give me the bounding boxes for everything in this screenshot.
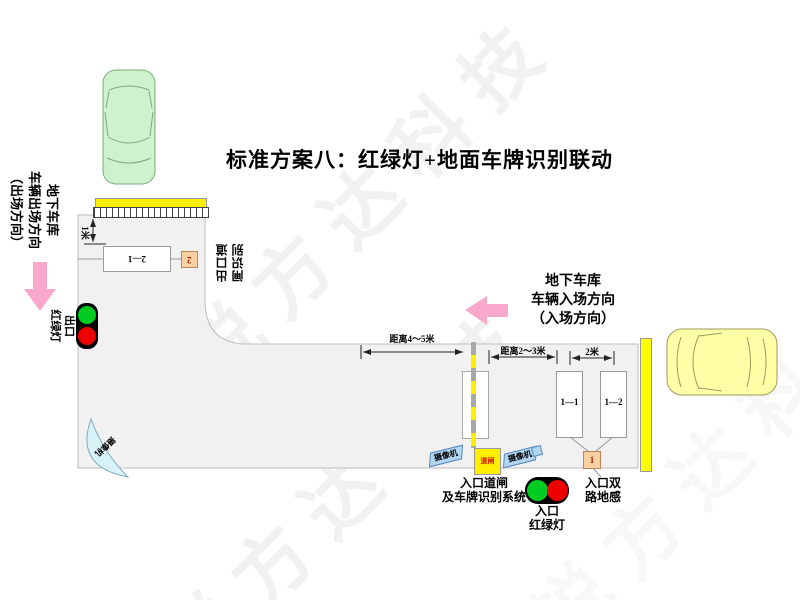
- entrance-boundary-bar: [640, 338, 652, 472]
- red-light-icon: [78, 327, 96, 345]
- exit-loop-box: 2—1: [103, 246, 171, 272]
- green-light-icon: [78, 306, 96, 324]
- entrance-barrier-label: 入口道闸 及车牌识别系统: [436, 476, 532, 504]
- exit-direction-label: 地下车库 车辆出场方向 （出场方向）: [7, 165, 61, 255]
- exit-loop-box-label: 2—1: [128, 247, 146, 271]
- entrance-light-label: 入口 红绿灯: [524, 504, 570, 532]
- exit-traffic-light: [76, 303, 98, 349]
- red-light-icon: [547, 480, 568, 501]
- dim-2m-label: 2米: [577, 345, 607, 358]
- entrance-loop-box-2: 1—2: [600, 371, 627, 438]
- exit-sensor-label: 2: [187, 252, 192, 267]
- entrance-direction-arrow: [465, 296, 508, 325]
- entrance-ground-sensor: 1: [583, 451, 601, 469]
- entrance-gate-box: 道闸: [474, 448, 501, 475]
- entrance-car: [667, 329, 777, 395]
- exit-barrier-hatch: [93, 207, 209, 218]
- exit-light-label: 出口 红绿灯: [48, 306, 76, 346]
- dim-2-3m-label: 距离2～3米: [483, 344, 563, 357]
- exit-gate-label: 出口道闸识别: [214, 238, 246, 282]
- exit-direction-arrow: [24, 262, 56, 311]
- diagram-shapes: [0, 0, 800, 600]
- dim-4-5m-label: 距离4～5米: [372, 332, 452, 345]
- entrance-barrier-pole: [471, 342, 476, 448]
- dim-1m-label: 1米: [79, 220, 91, 246]
- entrance-loop-box-1: 1—1: [556, 371, 583, 438]
- exit-ground-sensor: 2: [181, 251, 198, 268]
- entrance-direction-label: 地下车库 车辆入场方向 （入场方向）: [513, 272, 633, 329]
- page-title: 标准方案八：红绿灯+地面车牌识别联动: [226, 144, 613, 174]
- exit-car: [103, 70, 155, 184]
- entrance-loop-label: 入口双 路地感: [582, 476, 624, 504]
- diagram-canvas: 锐方达科技 锐方达科技 锐方达科技: [0, 0, 800, 600]
